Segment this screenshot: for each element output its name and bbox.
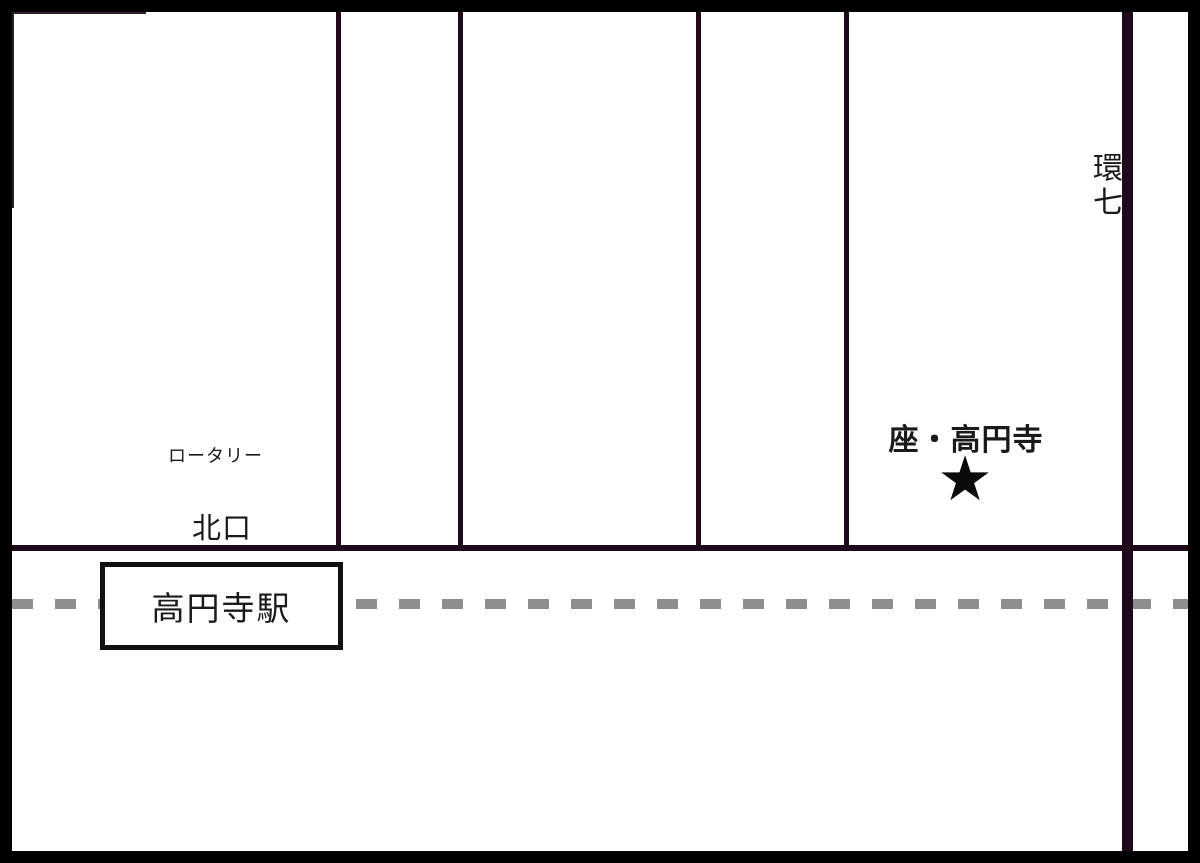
road-horizontal-street: [12, 545, 1188, 551]
road-thin-horizontal: [12, 12, 146, 14]
station-label: 高円寺駅: [152, 582, 292, 630]
ring-road-kannana: [1122, 12, 1133, 851]
access-map: 高円寺駅 ロータリー 北口 座・高円寺 ★ 環七: [0, 0, 1200, 863]
ring-road-label: 環七: [1082, 152, 1126, 220]
north-exit-label: 北口: [192, 505, 252, 547]
station-box: 高円寺駅: [100, 562, 343, 650]
star-icon: ★: [930, 450, 1000, 510]
rotary-label: ロータリー: [168, 442, 263, 468]
road-vertical-3: [696, 12, 701, 551]
road-vertical-4: [844, 12, 849, 551]
road-vertical-2: [458, 12, 463, 551]
road-vertical-1: [336, 12, 341, 551]
road-thin-vertical: [12, 14, 14, 208]
